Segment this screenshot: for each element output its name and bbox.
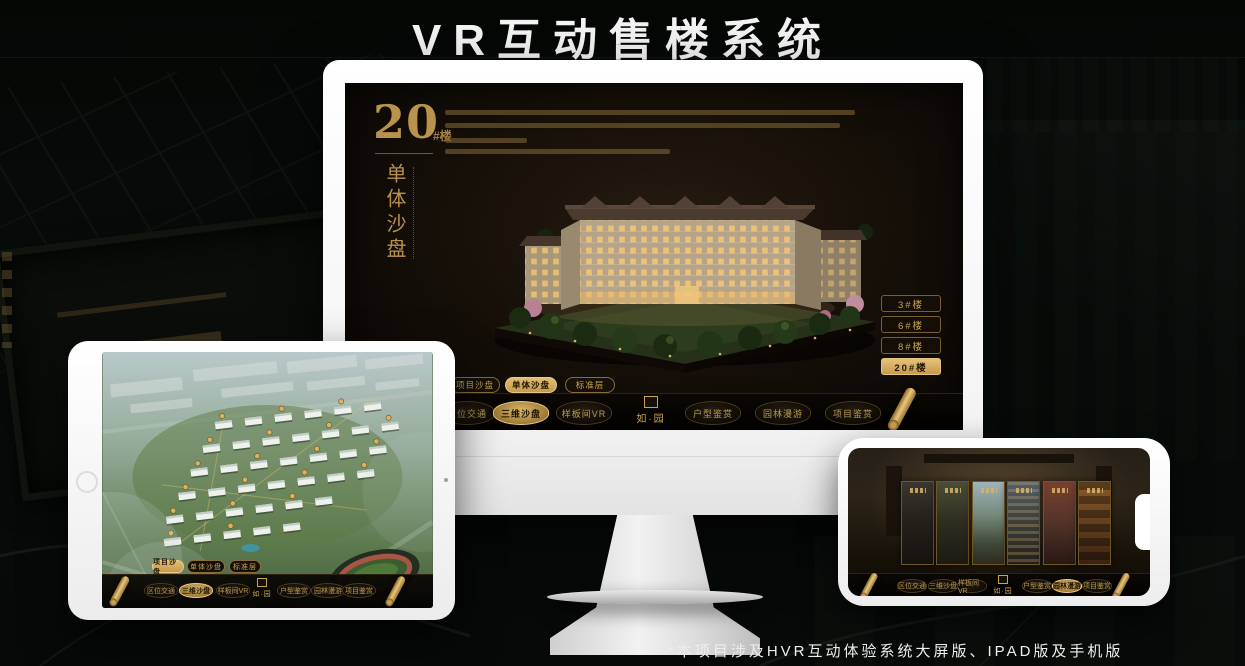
background-building-photo xyxy=(975,120,1245,460)
tablet-mode-tab-single[interactable]: 单体沙盘 xyxy=(187,560,225,573)
hero-subtitle-english xyxy=(413,167,414,259)
menu-item-garden-roam[interactable]: 园林漫游 xyxy=(311,583,345,598)
menu-label: 园林漫游 xyxy=(314,586,342,596)
tablet-mode-tab-project[interactable]: 项目沙盘 xyxy=(152,560,184,573)
menu-item-project-view[interactable]: 项目鉴赏 xyxy=(825,401,881,425)
phone-notch xyxy=(1135,494,1150,550)
menu-label: 园林漫游 xyxy=(1053,581,1081,591)
pano-panel-garden[interactable] xyxy=(1043,481,1076,565)
menu-item-garden-roam[interactable]: 园林漫游 xyxy=(1052,579,1082,593)
pano-panel-interior-2[interactable] xyxy=(936,481,969,565)
menu-label: 三维沙盘 xyxy=(929,581,957,591)
mode-tab-single[interactable]: 单体沙盘 xyxy=(505,377,557,393)
scroll-menu-icon[interactable] xyxy=(385,575,406,605)
brand-logo: 如·园 xyxy=(633,396,669,425)
floor-button-20[interactable]: 20#楼 xyxy=(881,358,941,375)
seal-icon xyxy=(644,396,658,408)
menu-label: 项目鉴赏 xyxy=(345,586,373,596)
tablet-home-button[interactable] xyxy=(76,471,98,493)
background-gold-text-edge xyxy=(2,252,12,348)
tablet-mode-tab-floor[interactable]: 标准层 xyxy=(229,560,261,573)
menu-label: 项目鉴赏 xyxy=(833,407,873,420)
brand-logo: 如·园 xyxy=(249,578,275,599)
brand-logo-text: 如·园 xyxy=(993,588,1012,595)
menu-item-location[interactable]: 区位交通 xyxy=(144,583,178,598)
panel-label xyxy=(1016,488,1032,493)
tablet-device: 项目沙盘 单体沙盘 标准层 区位交通 三维沙盘 样板间VR 如·园 户型鉴赏 园… xyxy=(68,341,455,620)
scroll-menu-icon[interactable] xyxy=(860,572,878,596)
menu-label: 区位交通 xyxy=(898,581,926,591)
menu-label: 项目鉴赏 xyxy=(1083,581,1111,591)
floor-button-3[interactable]: 3#楼 xyxy=(881,295,941,312)
aerial-masterplan-view[interactable] xyxy=(102,352,433,608)
background-city-photo xyxy=(987,58,1237,132)
hero-block-number: 20 xyxy=(373,95,439,149)
menu-item-showroom-vr[interactable]: 样板间VR xyxy=(957,579,987,593)
panel-label xyxy=(981,488,997,493)
menu-item-sandbox[interactable]: 三维沙盘 xyxy=(928,579,958,593)
poster: VR互动售楼系统 20 #楼 单体沙盘 xyxy=(0,0,1245,666)
menu-item-garden-roam[interactable]: 园林漫游 xyxy=(755,401,811,425)
seal-icon xyxy=(257,578,267,587)
menu-item-sandbox[interactable]: 三维沙盘 xyxy=(493,401,549,425)
scroll-menu-icon[interactable] xyxy=(1112,572,1130,596)
monitor-base xyxy=(547,590,763,604)
gate-pillar xyxy=(886,466,902,536)
menu-item-project-view[interactable]: 项目鉴赏 xyxy=(1082,579,1112,593)
brand-logo: 如·园 xyxy=(991,575,1015,596)
menu-item-floorplan[interactable]: 户型鉴赏 xyxy=(1022,579,1052,593)
seal-icon xyxy=(998,575,1008,584)
scroll-menu-icon[interactable] xyxy=(887,386,917,430)
menu-label: 样板间VR xyxy=(218,586,249,596)
floor-button-6[interactable]: 6#楼 xyxy=(881,316,941,333)
phone-menu-bar: 区位交通 三维沙盘 样板间VR 如·园 户型鉴赏 园林漫游 项目鉴赏 xyxy=(848,573,1150,596)
description-line xyxy=(445,149,670,154)
tablet-menu-bar: 区位交通 三维沙盘 样板间VR 如·园 户型鉴赏 园林漫游 项目鉴赏 xyxy=(102,574,433,608)
scroll-menu-icon[interactable] xyxy=(109,575,130,605)
brand-logo-text: 如·园 xyxy=(636,414,665,425)
brand-logo-text: 如·园 xyxy=(252,591,271,598)
menu-item-floorplan[interactable]: 户型鉴赏 xyxy=(277,583,311,598)
footnote-text: *本项目涉及HVR互动体验系统大屏版、IPAD版及手机版 xyxy=(668,640,1123,661)
menu-label: 三维沙盘 xyxy=(501,407,541,420)
building-3d-view[interactable] xyxy=(485,168,885,373)
description-line xyxy=(445,138,527,143)
menu-label: 户型鉴赏 xyxy=(1023,581,1051,591)
menu-item-showroom-vr[interactable]: 样板间VR xyxy=(216,583,250,598)
hero-divider xyxy=(375,153,433,154)
page-title: VR互动售楼系统 xyxy=(0,4,1245,68)
phone-device: 区位交通 三维沙盘 样板间VR 如·园 户型鉴赏 园林漫游 项目鉴赏 xyxy=(838,438,1170,606)
floor-button-8[interactable]: 8#楼 xyxy=(881,337,941,354)
panel-label xyxy=(1052,488,1068,493)
pano-panel-building-1[interactable] xyxy=(972,481,1005,565)
menu-item-sandbox[interactable]: 三维沙盘 xyxy=(179,583,213,598)
menu-label: 户型鉴赏 xyxy=(693,407,733,420)
mode-tab-project[interactable]: 项目沙盘 xyxy=(450,377,500,393)
menu-label: 三维沙盘 xyxy=(182,586,210,596)
pano-panel-shelf[interactable] xyxy=(1078,481,1111,565)
menu-label: 区位交通 xyxy=(147,586,175,596)
panel-label xyxy=(910,488,926,493)
pano-panel-building-2[interactable] xyxy=(1007,481,1040,565)
menu-label: 园林漫游 xyxy=(763,407,803,420)
pano-panel-interior-1[interactable] xyxy=(901,481,934,565)
menu-label: 样板间VR xyxy=(958,578,986,595)
menu-label: 样板间VR xyxy=(562,407,607,420)
gate-beam xyxy=(924,454,1074,463)
hero-subtitle: 单体沙盘 xyxy=(381,163,410,263)
menu-label: 户型鉴赏 xyxy=(280,586,308,596)
description-line xyxy=(445,110,855,115)
menu-item-project-view[interactable]: 项目鉴赏 xyxy=(342,583,376,598)
menu-item-floorplan[interactable]: 户型鉴赏 xyxy=(685,401,741,425)
mode-tab-floor[interactable]: 标准层 xyxy=(565,377,615,393)
description-line xyxy=(445,123,840,128)
panel-label xyxy=(945,488,961,493)
tablet-camera-icon xyxy=(444,478,448,482)
panel-label xyxy=(1087,488,1103,493)
tablet-screen: 项目沙盘 单体沙盘 标准层 区位交通 三维沙盘 样板间VR 如·园 户型鉴赏 园… xyxy=(102,352,433,608)
menu-item-location[interactable]: 区位交通 xyxy=(897,579,927,593)
menu-item-showroom-vr[interactable]: 样板间VR xyxy=(556,401,612,425)
phone-screen: 区位交通 三维沙盘 样板间VR 如·园 户型鉴赏 园林漫游 项目鉴赏 xyxy=(848,448,1150,596)
